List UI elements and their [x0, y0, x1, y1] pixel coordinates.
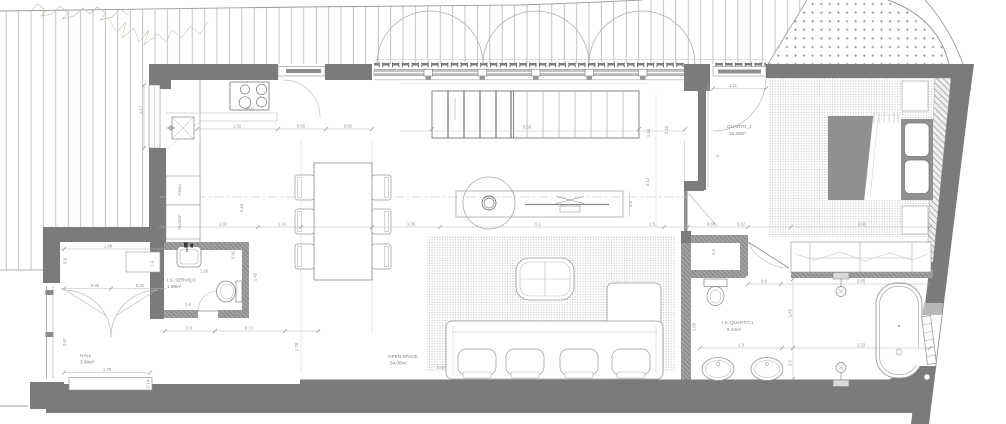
svg-text:5: 5	[715, 154, 720, 157]
svg-text:0.14: 0.14	[146, 379, 151, 388]
svg-text:1.48: 1.48	[646, 128, 651, 137]
svg-text:0.9: 0.9	[186, 326, 192, 331]
svg-text:HALL: HALL	[80, 353, 92, 358]
svg-text:0.12: 0.12	[737, 222, 746, 227]
svg-text:1.6: 1.6	[833, 154, 838, 160]
svg-text:1.08: 1.08	[692, 322, 697, 331]
svg-text:0.80: 0.80	[136, 283, 145, 288]
svg-text:1.9: 1.9	[738, 343, 744, 348]
svg-text:1.19: 1.19	[278, 222, 287, 227]
svg-text:3.88m²: 3.88m²	[80, 360, 95, 365]
svg-text:0.72: 0.72	[245, 326, 254, 331]
svg-text:0.8: 0.8	[63, 257, 68, 263]
svg-text:5.1: 5.1	[535, 222, 541, 227]
svg-text:1.17: 1.17	[138, 105, 143, 114]
svg-text:FORNO: FORNO	[178, 184, 182, 196]
svg-text:1.26: 1.26	[200, 269, 209, 274]
svg-text:2.91: 2.91	[858, 222, 867, 227]
svg-text:QUARTO_1: QUARTO_1	[727, 124, 752, 129]
svg-text:1.88: 1.88	[104, 244, 113, 249]
svg-text:0.9: 0.9	[761, 279, 767, 284]
svg-text:1.4: 1.4	[150, 260, 155, 266]
svg-text:1.36: 1.36	[407, 222, 416, 227]
svg-text:0.82: 0.82	[344, 124, 353, 129]
svg-text:1.45: 1.45	[788, 308, 793, 317]
svg-text:15.25m²: 15.25m²	[729, 131, 746, 136]
svg-text:0.97: 0.97	[437, 365, 446, 370]
svg-text:0.8: 0.8	[628, 200, 633, 206]
svg-text:1.98m²: 1.98m²	[167, 284, 182, 289]
svg-text:9.44m²: 9.44m²	[727, 327, 742, 332]
svg-text:I.S. QUARTO 1: I.S. QUARTO 1	[722, 320, 754, 325]
svg-text:2.23: 2.23	[857, 343, 866, 348]
svg-text:1.02: 1.02	[233, 124, 242, 129]
svg-text:FRIGORIF.: FRIGORIF.	[178, 214, 182, 230]
svg-text:0.80: 0.80	[91, 283, 100, 288]
svg-text:2.87: 2.87	[62, 337, 67, 346]
svg-text:1.11: 1.11	[729, 83, 738, 88]
svg-text:I.S. SERVIÇO: I.S. SERVIÇO	[167, 278, 196, 283]
svg-text:2.65: 2.65	[857, 279, 866, 284]
svg-text:0.86: 0.86	[707, 222, 716, 227]
svg-text:1.02: 1.02	[219, 222, 228, 227]
svg-text:1.5: 1.5	[649, 222, 655, 227]
svg-text:0.65: 0.65	[297, 124, 306, 129]
svg-text:1.79: 1.79	[103, 367, 112, 372]
svg-text:BALAY: BALAY	[246, 107, 254, 111]
svg-text:2.43: 2.43	[239, 203, 244, 212]
svg-text:2.43: 2.43	[664, 125, 669, 134]
svg-text:1.45: 1.45	[253, 272, 258, 281]
svg-text:0.5: 0.5	[788, 359, 793, 365]
svg-text:54.00m²: 54.00m²	[390, 361, 407, 366]
svg-text:0.13: 0.13	[645, 177, 650, 186]
svg-text:0.41: 0.41	[231, 250, 236, 259]
svg-text:1.78: 1.78	[294, 342, 299, 351]
svg-text:3.0: 3.0	[711, 248, 716, 254]
svg-text:OPEN SPACE: OPEN SPACE	[388, 354, 418, 359]
svg-text:5.86: 5.86	[523, 125, 532, 130]
svg-text:0.9: 0.9	[185, 302, 191, 307]
